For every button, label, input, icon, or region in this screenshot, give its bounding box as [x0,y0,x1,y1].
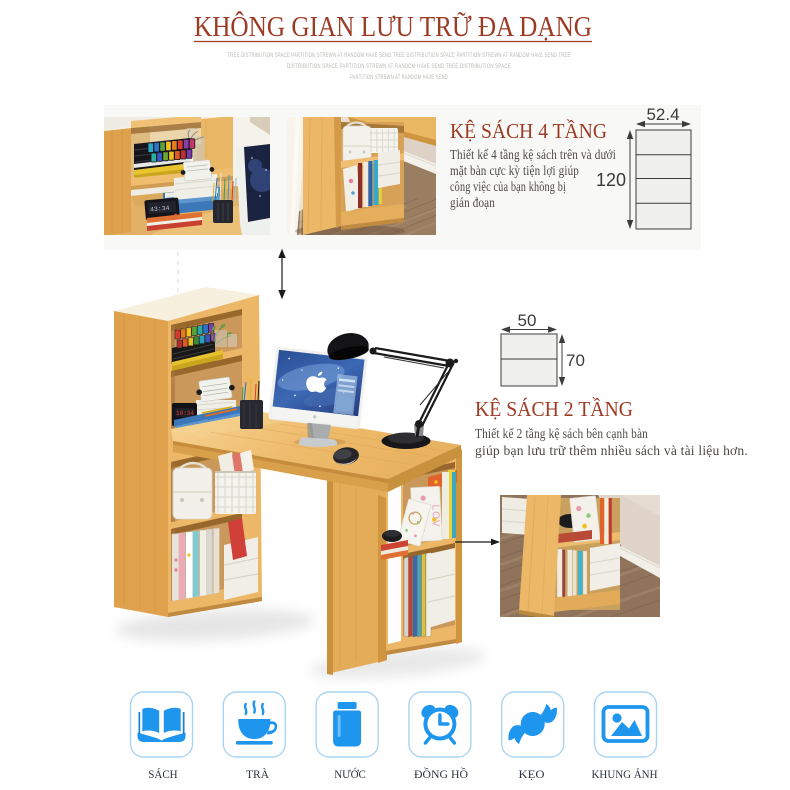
svg-text:KỆ SÁCH 2 TẦNG: KỆ SÁCH 2 TẦNG [475,397,633,421]
svg-text:KẸO: KẸO [519,769,545,781]
svg-text:KHUNG ẢNH: KHUNG ẢNH [592,767,658,781]
svg-text:SÁCH: SÁCH [148,767,177,781]
svg-text:DISTRIBUTION SPACE PARTITION S: DISTRIBUTION SPACE PARTITION STREWN AT R… [287,63,511,70]
svg-text:KHÔNG GIAN LƯU TRỮ ĐA DẠNG: KHÔNG GIAN LƯU TRỮ ĐA DẠNG [194,10,592,43]
svg-text:10:34: 10:34 [176,410,194,417]
svg-text:gián đoạn: gián đoạn [450,196,495,211]
svg-text:120: 120 [596,170,626,190]
svg-text:TREE DISTRIBUTION SPACE PARTIT: TREE DISTRIBUTION SPACE PARTITION STREWN… [228,52,571,59]
svg-text:NƯỚC: NƯỚC [334,767,366,781]
svg-text:TRÀ: TRÀ [246,767,270,781]
svg-text:50: 50 [518,311,537,330]
svg-text:KỆ SÁCH 4 TẦNG: KỆ SÁCH 4 TẦNG [450,119,607,143]
svg-text:52.4: 52.4 [646,105,679,124]
svg-text:ĐỒNG HỒ: ĐỒNG HỒ [414,766,468,781]
svg-text:Thiết kế 2 tầng kệ sách bên cạ: Thiết kế 2 tầng kệ sách bên cạnh bàn [475,427,648,442]
svg-text:Thiết kế 4 tầng kệ sách trên v: Thiết kế 4 tầng kệ sách trên và dưới [450,148,616,163]
svg-text:mặt bàn cực kỳ tiện lợi giúp: mặt bàn cực kỳ tiện lợi giúp [450,164,579,179]
svg-text:PARTITION STREWN AT RANDOM HAV: PARTITION STREWN AT RANDOM HAVE SEND [350,74,448,81]
svg-text:công việc của bạn không bị: công việc của bạn không bị [450,180,566,195]
svg-text:LOV: LOV [429,505,440,528]
svg-text:giúp bạn lưu trữ thêm nhiều sá: giúp bạn lưu trữ thêm nhiều sách và tài … [475,444,748,459]
svg-text:70: 70 [566,351,585,370]
